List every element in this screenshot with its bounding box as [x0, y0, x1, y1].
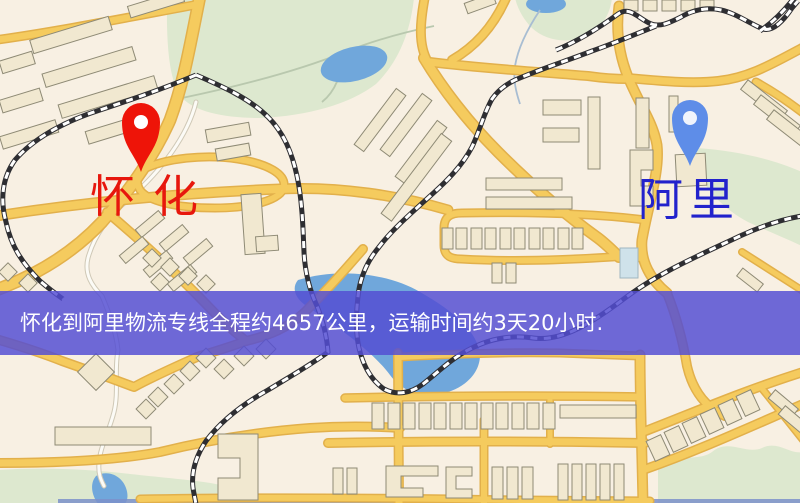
route-info-text: 怀化到阿里物流专线全程约4657公里，运输时间约3天20小时. — [0, 291, 800, 355]
map-graphic — [0, 0, 800, 503]
pin-hole — [134, 115, 148, 129]
map-canvas[interactable]: 怀化 阿里 怀化到阿里物流专线全程约4657公里，运输时间约3天20小时. — [0, 0, 800, 503]
pin-hole — [683, 111, 697, 125]
route-info-banner: 怀化到阿里物流专线全程约4657公里，运输时间约3天20小时. — [0, 291, 800, 355]
